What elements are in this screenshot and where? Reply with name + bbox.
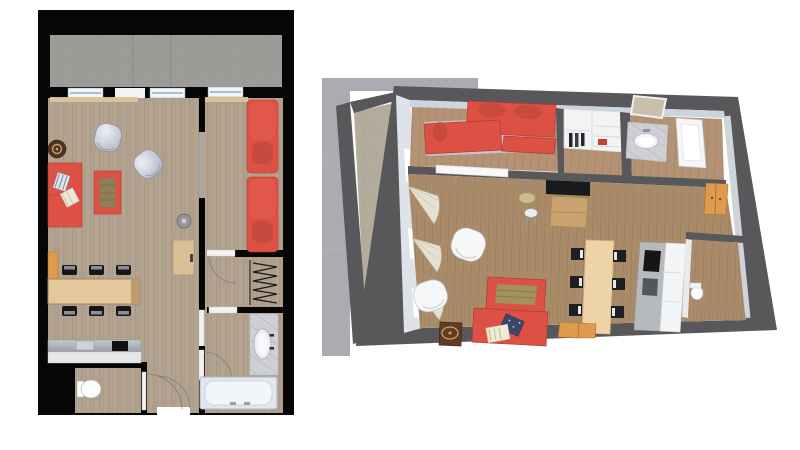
door [142,372,146,410]
wall [199,198,205,310]
rug-2d [94,171,121,214]
faucet [270,347,275,350]
hanging-clothes [581,133,585,146]
entrance-opening [157,407,190,415]
bench-3d [558,322,596,338]
bed-2d [247,100,278,173]
red-sofa [48,163,82,227]
stool-center [182,219,187,224]
wardrobe-3d [564,109,622,152]
bed-2d [247,177,278,252]
sculpture-3d [525,209,538,218]
side-table-dot [56,148,59,151]
dining-chairs-right [611,250,626,318]
kitchen-sink [76,341,94,350]
hanging-clothes [569,133,573,147]
dining-table-2d [48,279,140,304]
door [207,250,235,256]
curtain-strip [205,97,248,102]
desk-drawer [190,254,193,262]
door [199,350,204,380]
sofa-3d [472,308,548,346]
floor-plan-3d[interactable] [322,78,777,356]
toilet-2d [77,380,101,398]
kitchen-3d [634,242,686,332]
sliding-door [200,132,203,198]
tub-fitting [244,402,250,405]
toilet-tank-3d [690,283,701,288]
door [199,310,204,346]
hanging-clothes [575,133,579,147]
bed-red [502,136,556,154]
vanity-2d [250,314,278,375]
tub-fitting [230,402,236,405]
toilet-3d [691,287,703,300]
faucet [270,334,275,337]
cooktop [112,341,128,351]
wall-cabinet-3d [704,183,728,215]
rug-3d [486,277,546,312]
wc-floor [688,240,745,318]
side-table-3d [439,322,462,346]
wall [199,98,205,132]
kitchen-counter-2d [48,340,141,363]
oven-3d [642,278,658,296]
shelf-items [598,139,607,145]
floor-plan-canvas [0,0,800,450]
bench-2d [48,252,58,280]
balcony-floor [50,35,282,87]
cooktop-3d [643,250,661,272]
pendant-lamp-3d [519,193,535,203]
dining-table-end [131,279,140,304]
floor-plan-2d[interactable] [38,10,294,415]
counter-front [48,352,141,363]
faucet-3d [643,129,650,132]
door [209,307,237,313]
mirror-3d [631,96,666,118]
wc-3d [682,232,745,318]
dining-table-3d [582,240,614,334]
curtain-strip [50,97,138,102]
dining-chairs-left [569,248,584,316]
tv-3d [546,180,590,196]
floor-plan-sheet [0,0,800,450]
bathtub-2d [200,377,277,409]
